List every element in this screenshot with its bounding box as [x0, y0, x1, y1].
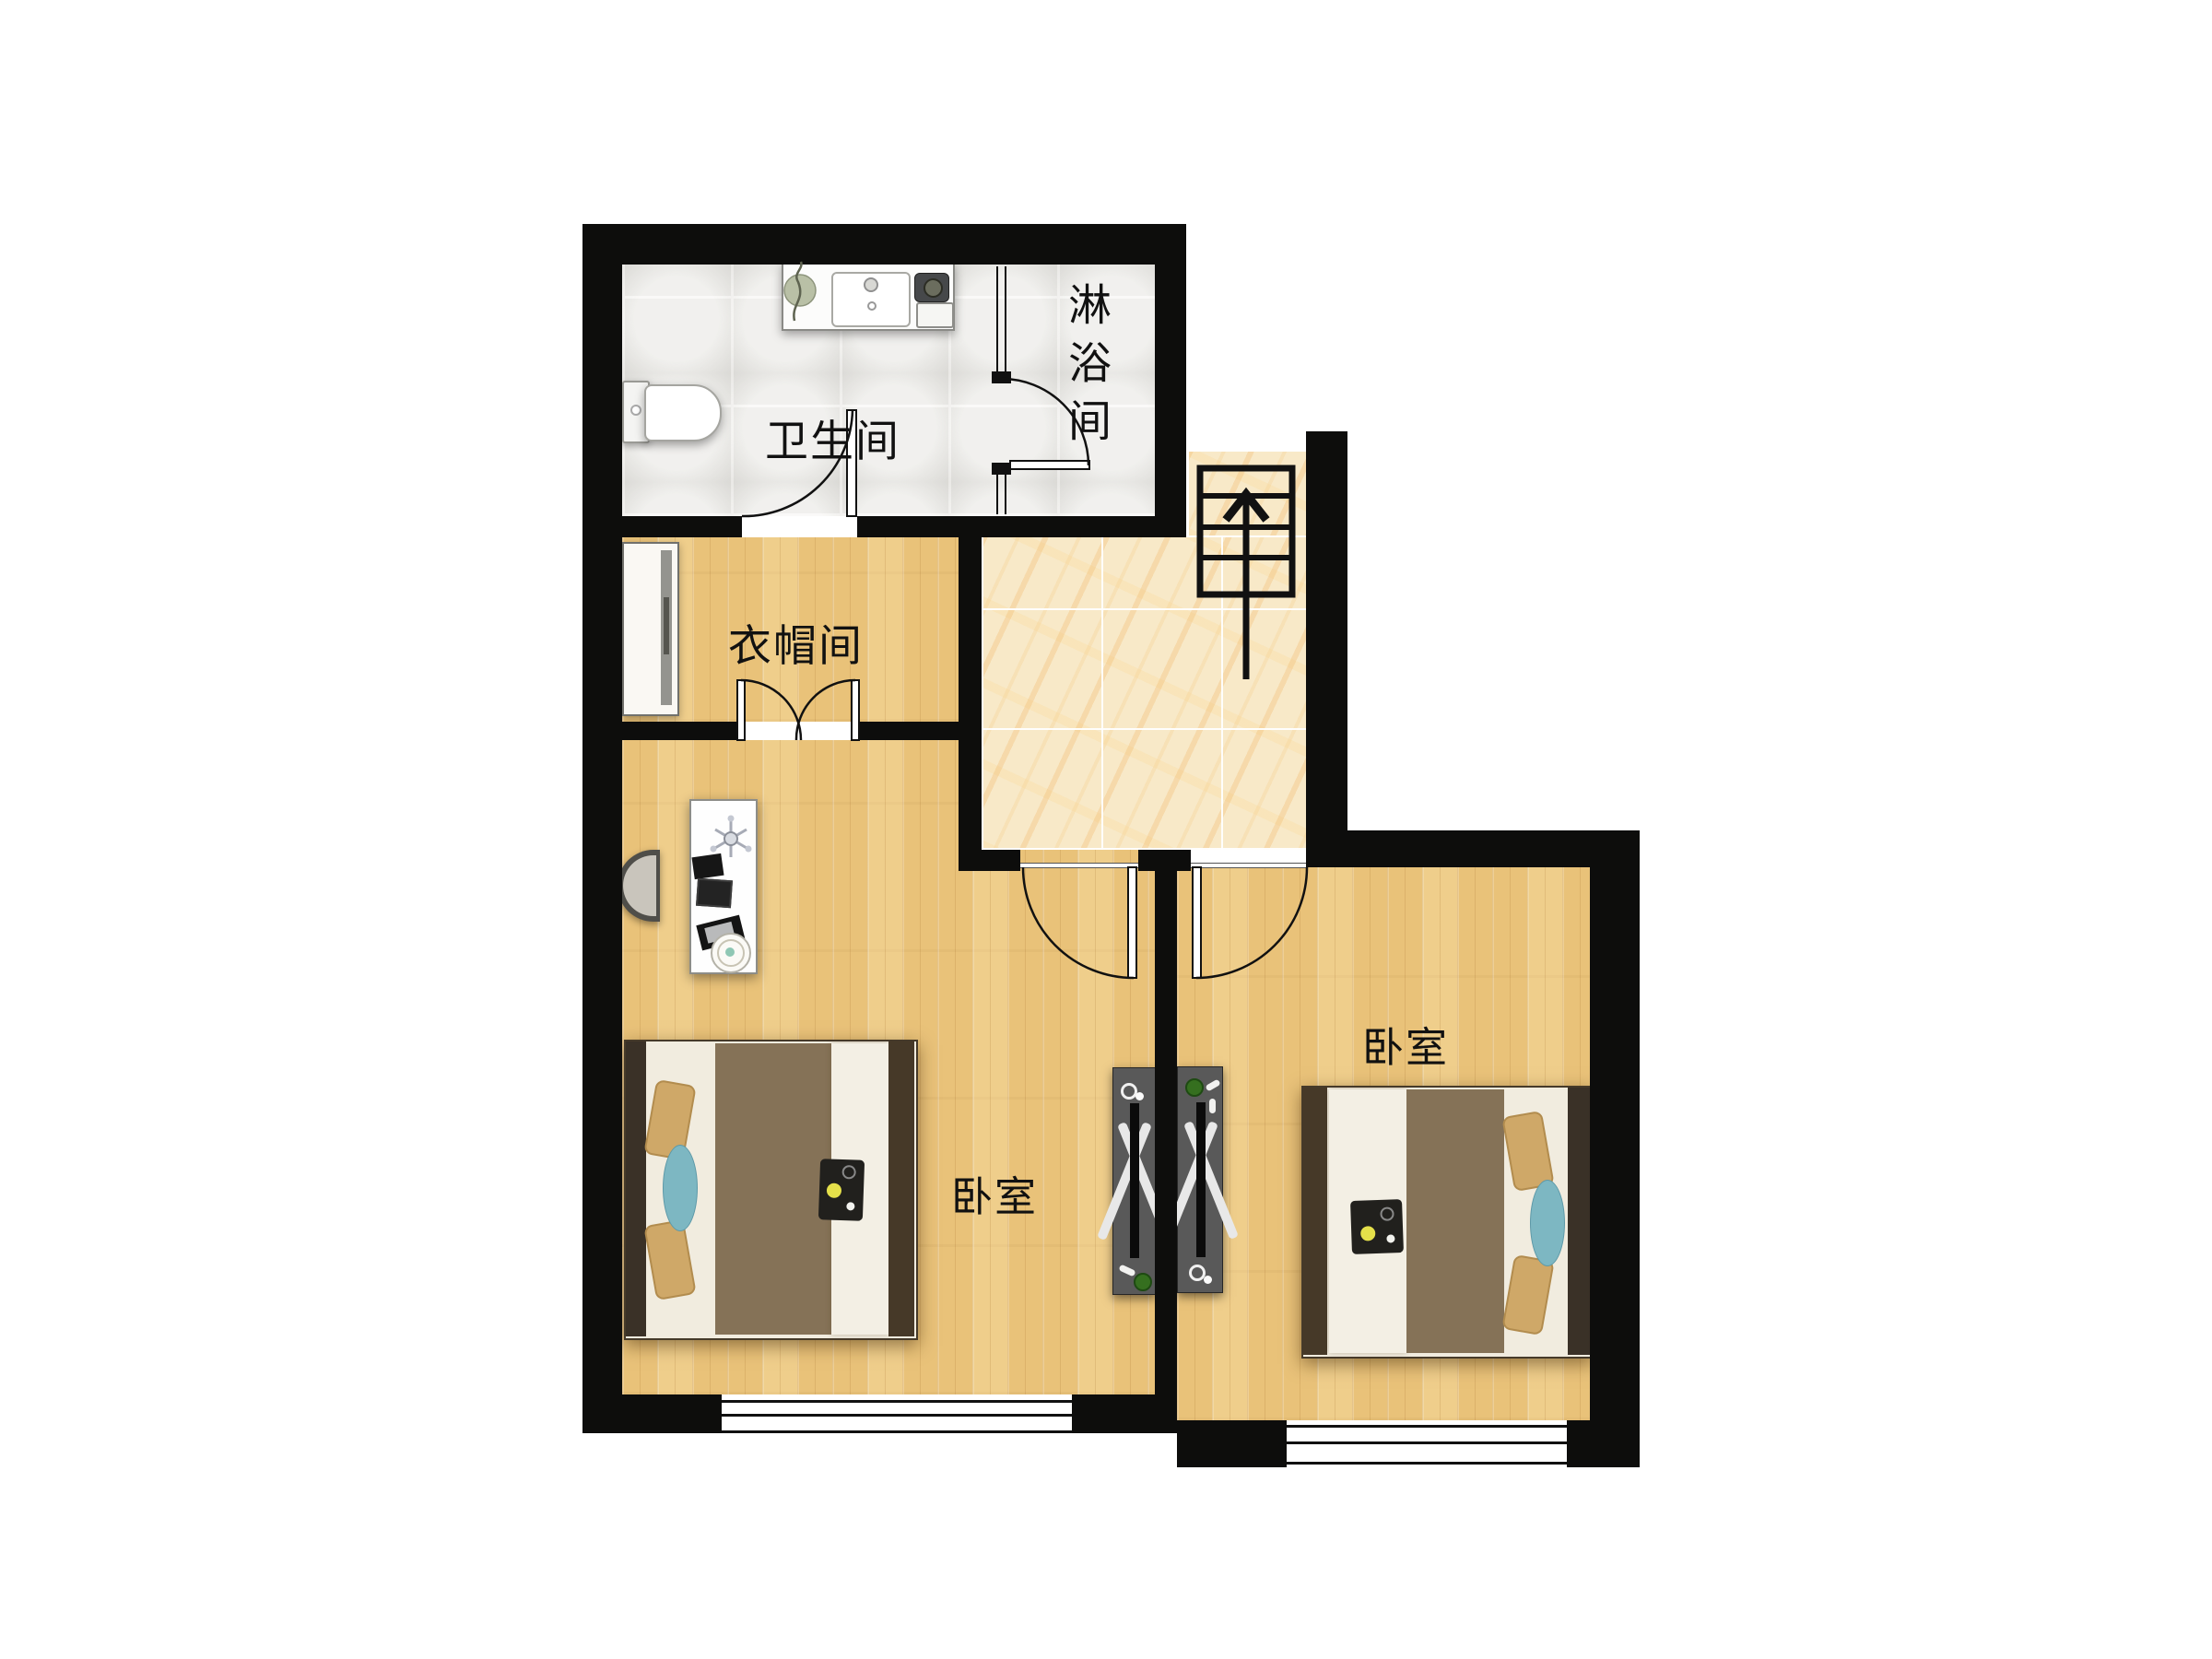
faucet-icon: [864, 277, 878, 292]
bed-bedroom-left: [624, 1040, 918, 1340]
desk-tablet: [696, 878, 733, 909]
wall-top: [582, 224, 1186, 265]
tray-ring-icon: [1380, 1206, 1394, 1221]
headboard: [1568, 1088, 1590, 1355]
decor-remote-icon: [1205, 1078, 1220, 1091]
decor-remote-icon: [1209, 1099, 1216, 1113]
wall-cloak-bottom-a: [582, 722, 739, 740]
office-chair-seat: [623, 855, 656, 916]
tray-candle-icon: [827, 1182, 842, 1198]
wall-cloak-bottom-b: [859, 722, 959, 740]
wall-bottom-right-a: [1177, 1420, 1287, 1467]
stair-hall-floor-upper: [1187, 452, 1306, 537]
wall-hall-right: [1306, 431, 1347, 867]
stair-hall-floor: [982, 537, 1306, 850]
potted-plant-icon: [1134, 1273, 1152, 1291]
wall-shower-right: [1155, 265, 1186, 537]
wall-bedroom-divider: [1155, 871, 1177, 1433]
tv-stand-bedroom-right: [1177, 1066, 1223, 1293]
robot-vacuum-center: [725, 947, 735, 957]
tv-stand-bedroom-left: [1112, 1067, 1157, 1295]
threshold-bedroom-right-door: [1191, 863, 1306, 868]
tv-screen-bar: [1196, 1102, 1206, 1257]
threshold-bedroom-left-door: [1020, 863, 1138, 868]
drain-icon: [867, 301, 877, 311]
room-label-bedroom-right: 卧室: [1362, 1014, 1449, 1074]
blanket: [715, 1043, 831, 1335]
floor-plan-canvas: 卫生间 淋浴间 衣帽间 卧室 卧室: [0, 0, 2212, 1659]
wall-bath-bottom-b: [857, 516, 1186, 537]
footboard: [1303, 1088, 1327, 1355]
room-label-bedroom-left: 卧室: [951, 1163, 1038, 1223]
wall-bath-bottom-a: [622, 516, 742, 537]
window-pane-line: [1287, 1441, 1567, 1444]
toilet-bowl: [644, 384, 722, 441]
window-bedroom-left: [722, 1400, 1072, 1433]
room-label-bathroom: 卫生间: [765, 406, 900, 469]
vanity-counter: [782, 263, 955, 331]
tv-screen-bar: [1130, 1103, 1139, 1258]
footboard: [888, 1041, 914, 1336]
wall-bedroom-right-side: [1590, 867, 1640, 1467]
window-pane-line: [722, 1414, 1072, 1417]
desk-books: [691, 853, 724, 879]
wall-hall-left: [959, 516, 982, 871]
tray-candle-icon: [1360, 1226, 1376, 1241]
wall-hall-pillar-b: [1138, 850, 1191, 871]
bed-tray: [1350, 1199, 1404, 1254]
round-pillow: [1530, 1180, 1565, 1266]
tray-cup-icon: [846, 1202, 854, 1210]
tray-cup-icon: [1386, 1234, 1394, 1242]
wall-bedroom-right-top: [1347, 830, 1640, 867]
blanket: [1406, 1089, 1504, 1353]
wall-hall-pillar-a: [963, 850, 1020, 871]
room-label-shower: 淋浴间: [1054, 282, 1118, 456]
counter-accessory-dark: [914, 273, 949, 302]
wardrobe: [622, 542, 679, 716]
wardrobe-handle: [664, 597, 669, 654]
headboard: [626, 1041, 646, 1336]
decor-remote-icon: [1118, 1265, 1135, 1277]
room-label-cloakroom: 衣帽间: [728, 610, 864, 674]
wall-bottom-left-b: [1072, 1394, 1177, 1433]
tray-ring-icon: [841, 1165, 856, 1180]
wall-left: [582, 224, 622, 1433]
robot-vacuum: [711, 933, 751, 973]
window-bedroom-right: [1287, 1425, 1567, 1465]
decor-dot-icon: [1135, 1092, 1144, 1100]
round-pillow: [663, 1145, 698, 1231]
wall-bottom-left-a: [582, 1394, 722, 1433]
flush-button-icon: [630, 405, 641, 416]
washbasin: [831, 272, 911, 327]
bed-tray: [818, 1159, 865, 1221]
bed-bedroom-right: [1301, 1086, 1594, 1359]
decor-dot-icon: [1204, 1276, 1212, 1284]
potted-plant-icon: [1185, 1078, 1204, 1097]
accessory-swirl-icon: [924, 278, 943, 298]
counter-accessory-box: [916, 302, 954, 328]
wall-bottom-right-b: [1567, 1420, 1640, 1467]
